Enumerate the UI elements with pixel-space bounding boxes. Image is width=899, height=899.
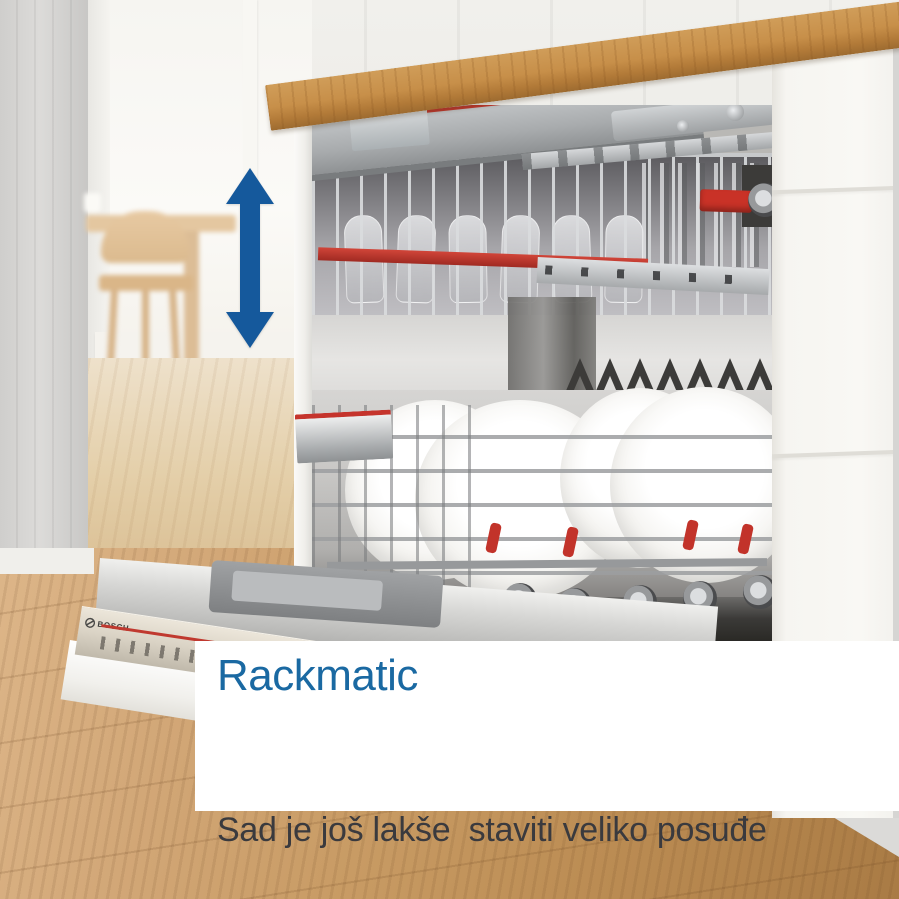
- height-adjust-arrow-icon: [222, 168, 278, 348]
- dishwasher-frame-left: [294, 100, 314, 645]
- caption-title: Rackmatic: [217, 654, 899, 698]
- caption-body: Sad je još lakše staviti veliko posuđe u…: [217, 710, 899, 899]
- drawer-seam: [772, 186, 899, 194]
- caption-box: Rackmatic Sad je još lakše staviti velik…: [195, 641, 899, 811]
- baseboard: [0, 548, 94, 574]
- rack-wheel: [748, 183, 774, 217]
- left-wall-pillar: [0, 0, 88, 560]
- kitchen-scene: BOSCH Rackmatic Sad je još lakše staviti…: [0, 0, 899, 899]
- rackmatic-red-handle: [700, 189, 753, 213]
- mug: [84, 193, 101, 213]
- dishwasher-interior: [312, 105, 774, 645]
- screw-head: [677, 120, 689, 132]
- drawer-seam: [772, 450, 899, 458]
- lower-rack-handle: [295, 410, 393, 464]
- floor-far: [88, 358, 312, 573]
- bosch-anchor-icon: [84, 617, 97, 630]
- rail-slots: [545, 265, 759, 285]
- rack-wheel: [743, 575, 774, 609]
- caption-line-1: Sad je još lakše staviti veliko posuđe: [217, 806, 899, 854]
- tray-lid: [231, 570, 383, 610]
